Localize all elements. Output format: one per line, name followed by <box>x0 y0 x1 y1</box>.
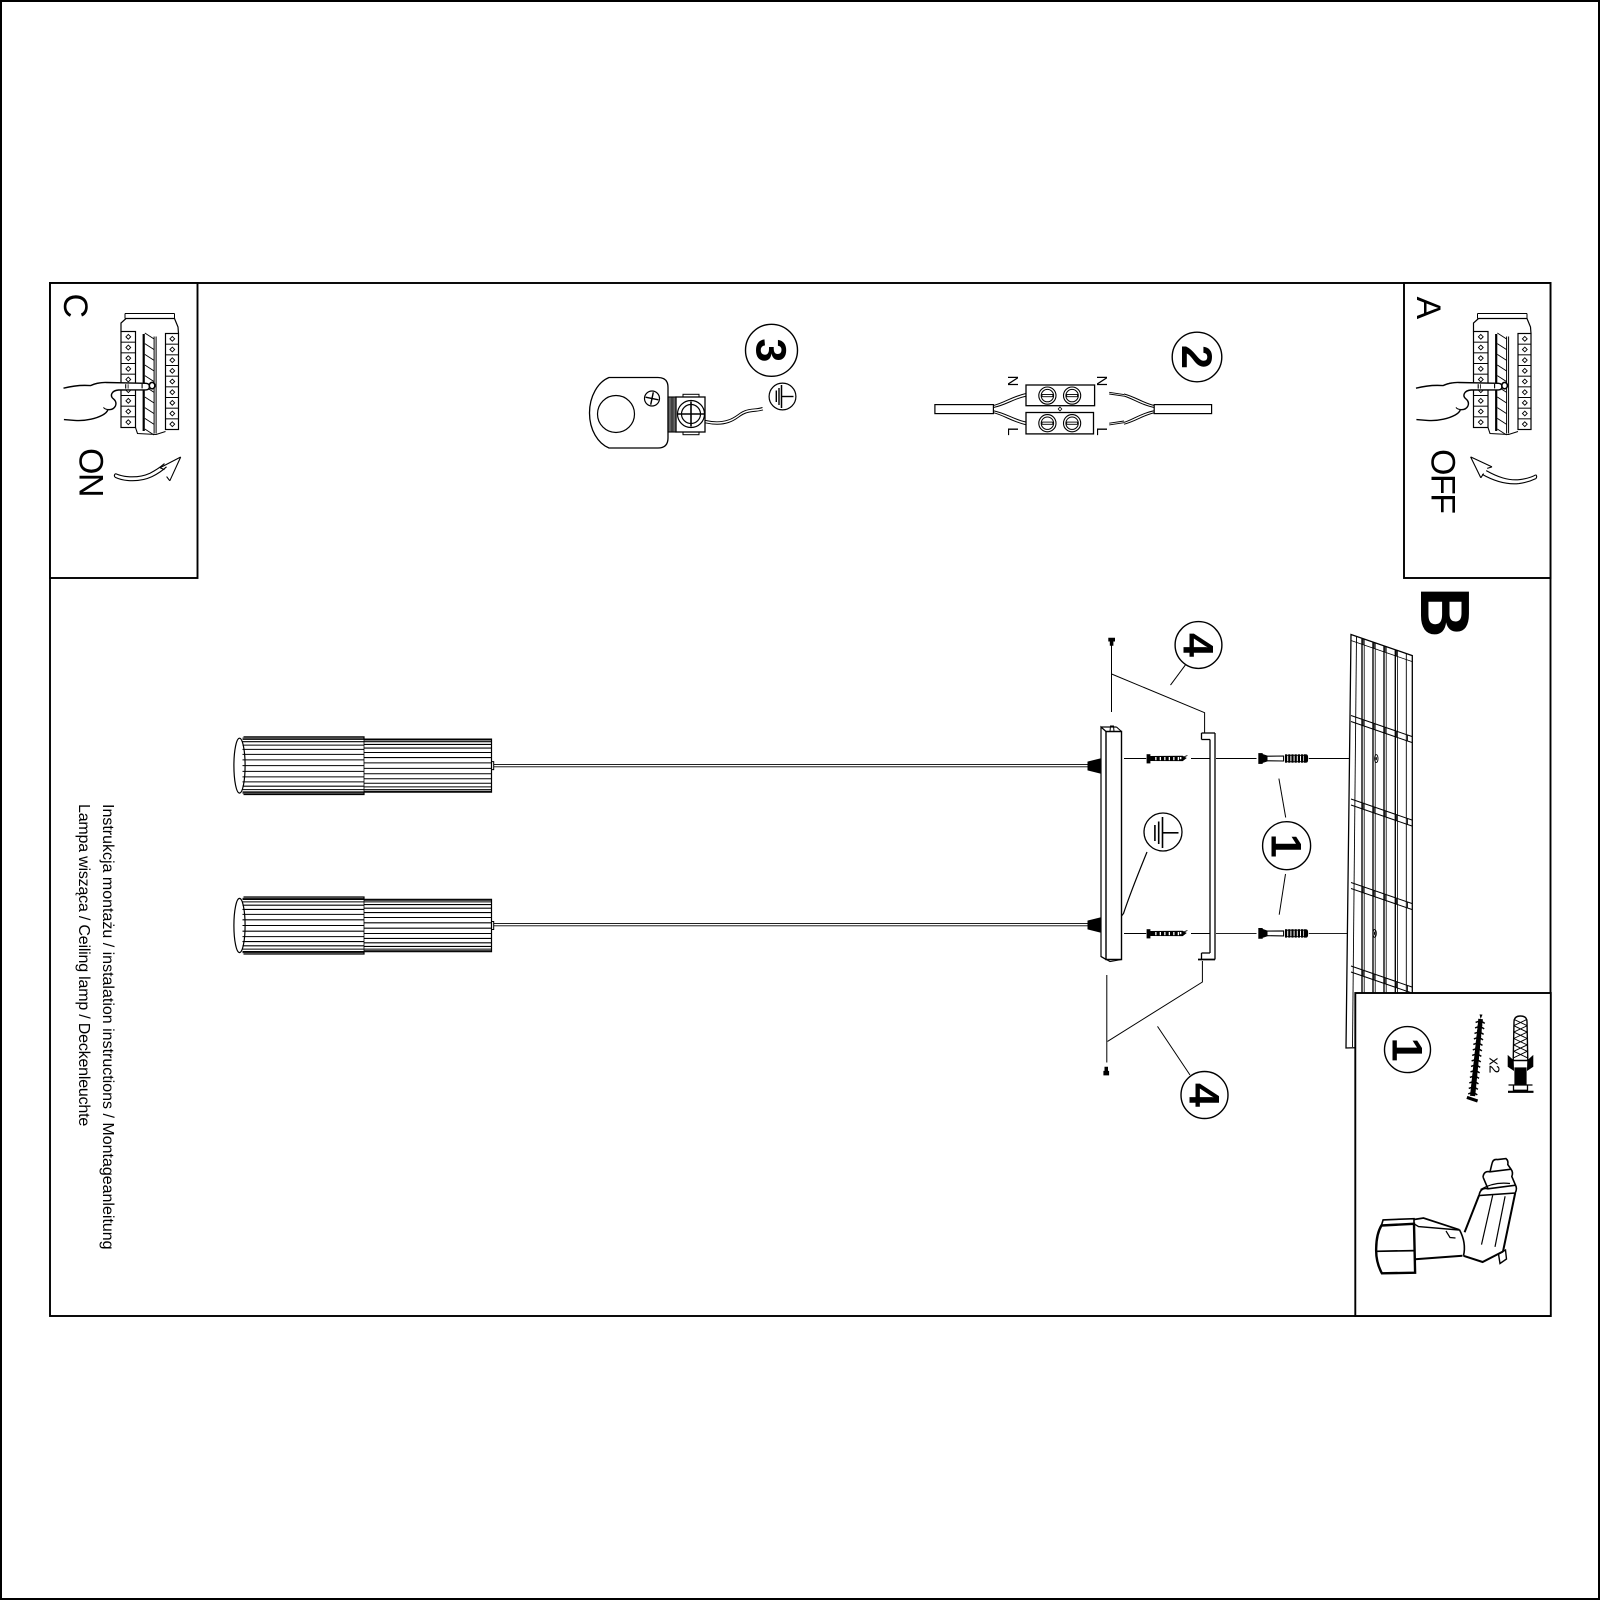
svg-text:ON: ON <box>72 448 110 496</box>
svg-text:1: 1 <box>1383 1038 1431 1062</box>
svg-text:x2: x2 <box>1486 1058 1503 1074</box>
svg-text:N: N <box>1004 376 1021 387</box>
svg-text:A: A <box>1409 297 1447 320</box>
svg-text:2: 2 <box>1172 345 1220 369</box>
svg-text:B: B <box>1406 587 1484 638</box>
svg-text:C: C <box>56 294 94 319</box>
svg-text:1: 1 <box>1262 834 1310 858</box>
svg-text:L: L <box>1093 427 1110 435</box>
svg-text:3: 3 <box>747 338 795 362</box>
svg-text:L: L <box>1004 427 1021 435</box>
svg-text:Instrukcja montażu / instalati: Instrukcja montażu / instalation instruc… <box>99 804 116 1250</box>
svg-text:4: 4 <box>1174 633 1222 657</box>
svg-text:Lampa wisząca / Ceiling lamp /: Lampa wisząca / Ceiling lamp / Deckenleu… <box>75 804 92 1126</box>
svg-text:OFF: OFF <box>1424 449 1462 513</box>
svg-text:N: N <box>1093 376 1110 387</box>
svg-text:4: 4 <box>1180 1083 1228 1107</box>
